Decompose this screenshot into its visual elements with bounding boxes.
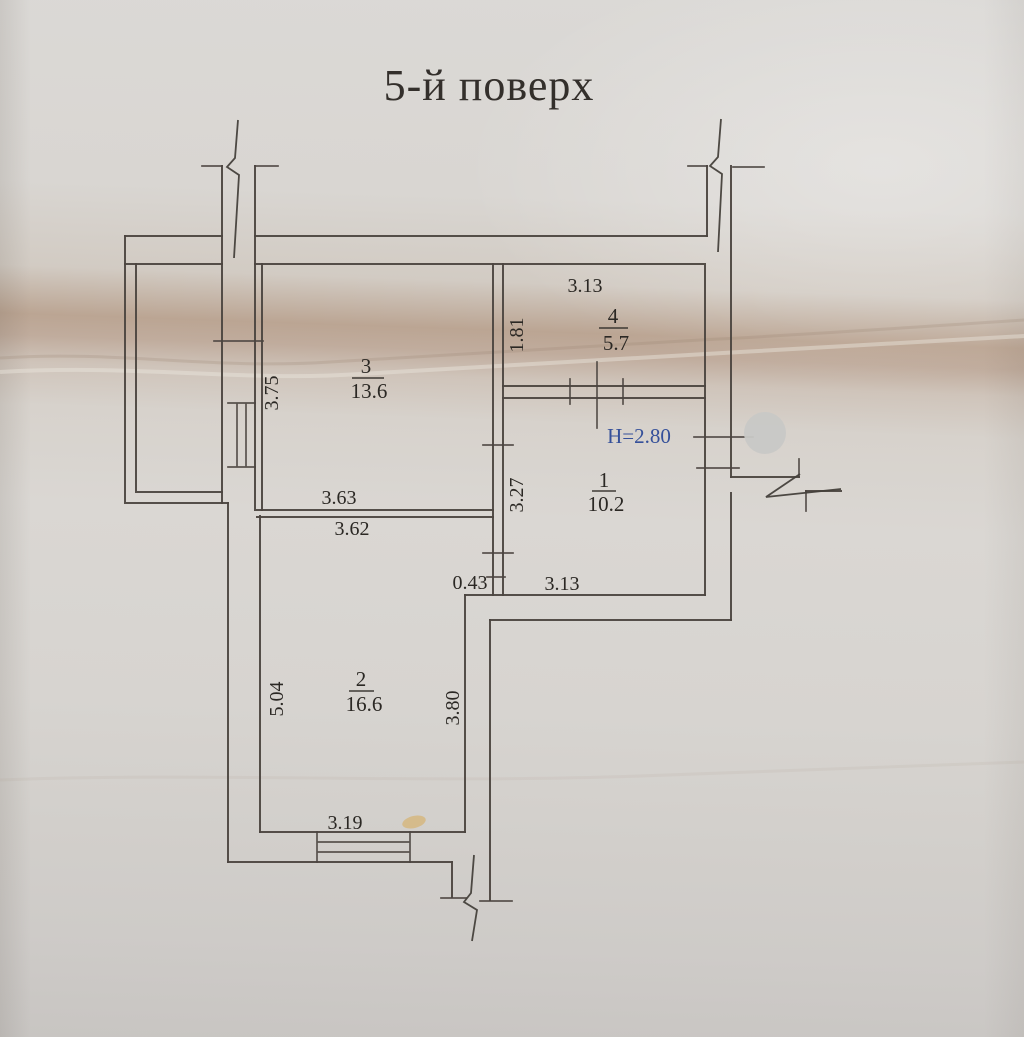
balcony-window — [228, 403, 255, 467]
plan-title: 5-й поверх — [384, 61, 595, 110]
room4-number: 4 — [608, 304, 619, 328]
dim-room2-width-bottom: 3.19 — [328, 812, 363, 834]
dim-room2-width-top: 3.62 — [335, 518, 370, 540]
dim-room2-height-right: 3.80 — [442, 691, 464, 726]
room1-number: 1 — [599, 468, 610, 492]
room3-number: 3 — [361, 354, 372, 378]
stairs — [317, 832, 410, 862]
scanned-floor-plan-page: 5-й поверх 3.13 1.81 4 5.7 3 13.6 3.75 3… — [0, 0, 1024, 1037]
room2-number: 2 — [356, 667, 367, 691]
room2-area: 16.6 — [346, 692, 383, 716]
dim-wall-offset: 0.43 — [453, 572, 488, 594]
dim-room2-height-left: 5.04 — [266, 682, 288, 717]
balcony-inner-wall — [136, 264, 222, 492]
right-break-ticks — [688, 166, 764, 167]
room3-area: 13.6 — [351, 379, 388, 403]
room3-room2-divider — [257, 510, 493, 517]
dim-room3-height: 3.75 — [261, 376, 283, 411]
room1-area: 10.2 — [588, 492, 625, 516]
central-wall — [493, 264, 503, 595]
left-riser-wall — [222, 166, 255, 510]
dim-room4-width: 3.13 — [568, 275, 603, 297]
left-break-zigzag — [227, 120, 239, 258]
crease-line-lower — [0, 762, 1024, 780]
right-wall-ticks — [694, 437, 753, 468]
paper-stain — [401, 813, 427, 830]
bottom-break-ticks — [441, 898, 512, 901]
paper-creases — [0, 320, 1024, 780]
dim-room4-height: 1.81 — [506, 318, 528, 353]
right-stub-ticks — [799, 459, 806, 511]
room4-room1-divider — [503, 386, 705, 398]
privacy-dot — [744, 412, 786, 454]
floor-plan-drawing: 5-й поверх 3.13 1.81 4 5.7 3 13.6 3.75 3… — [0, 0, 1024, 1037]
dim-room1-width: 3.13 — [545, 573, 580, 595]
dim-room1-height: 3.27 — [506, 478, 528, 513]
ceiling-height-note: H=2.80 — [607, 424, 671, 448]
room4-area: 5.7 — [603, 331, 629, 355]
dim-room3-width: 3.63 — [322, 487, 357, 509]
walls — [125, 119, 841, 941]
right-break-zigzag — [710, 119, 722, 252]
